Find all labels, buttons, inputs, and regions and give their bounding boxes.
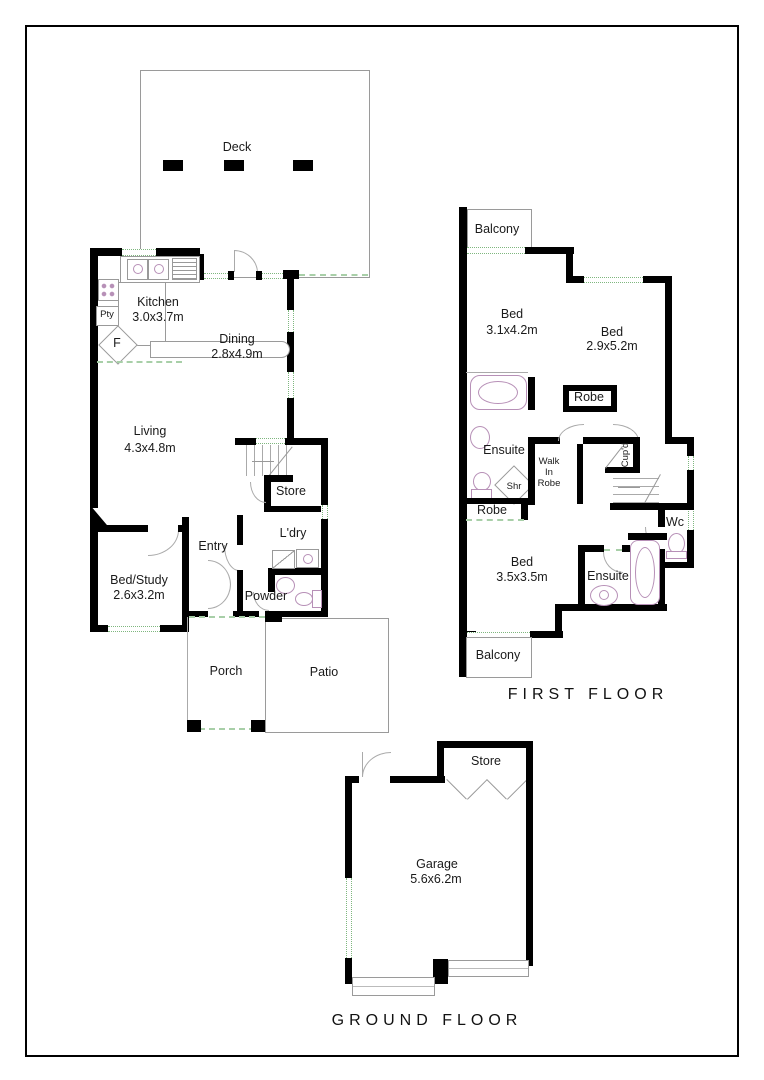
window [122,249,156,256]
opening-dash [189,616,265,618]
window [688,456,694,470]
laundry-tub-icon [272,550,295,569]
wir-label: In [545,468,553,478]
wall [321,445,328,505]
patio-label: Patio [310,666,339,680]
window [108,626,160,632]
window [346,878,352,958]
garage-dims: 5.6x6.2m [410,873,461,887]
wall [156,248,200,256]
window [584,277,643,283]
wall [265,611,282,622]
wall [528,437,560,444]
drainer-icon [172,258,197,280]
window [256,438,285,444]
wall [658,505,665,527]
wall [390,776,445,783]
door-leaf [362,752,363,776]
bed2-label: Bed [601,326,623,340]
wall [321,519,328,617]
wall [90,248,98,508]
wall [521,502,528,520]
pantry-label: Pty [100,310,114,320]
wall [583,437,605,444]
wall [90,525,148,532]
bed3-dims: 3.5x3.5m [496,571,547,585]
garage-door-panel [448,960,529,977]
porch-edge [187,617,188,730]
window [262,273,283,279]
wall [633,444,640,467]
wall-line [466,372,528,373]
wall [264,475,293,482]
balcony-top-label: Balcony [475,223,519,237]
wall [287,398,294,438]
wall [264,506,321,512]
wall [283,270,299,279]
toilet-icon [295,592,313,606]
dining-label: Dining [219,333,254,347]
wall [628,533,667,540]
wall [90,625,108,632]
deck-post [224,160,244,171]
window [688,508,694,530]
stairs-arrow [252,461,274,462]
toilet-icon [666,551,687,559]
window [322,505,328,519]
ensuite2-label: Ensuite [587,570,629,584]
bed-study-label: Bed/Study [110,574,168,588]
wall [665,562,694,568]
deck-label: Deck [223,141,251,155]
porch-post [187,720,201,732]
wall [459,207,467,677]
ensuite1-label: Ensuite [483,444,525,458]
porch-post [251,720,265,732]
wall [285,438,328,445]
fridge-label: F [113,337,121,351]
wall [665,283,672,437]
garage-door-panel [352,977,435,996]
wall [687,444,694,456]
opening-dash [97,361,182,363]
robe-strip-label: Robe [477,504,507,518]
wall [268,568,322,575]
entry-label: Entry [198,540,227,554]
window [288,310,294,332]
wall [182,517,189,632]
bed3-label: Bed [511,556,533,570]
wir-label: Robe [538,479,561,489]
store-label: Store [276,485,306,499]
toilet-icon [312,590,322,608]
wall [237,570,243,612]
basin-icon [590,585,618,606]
kitchen-label: Kitchen [137,296,179,310]
sink-icon [148,259,169,280]
wall [235,438,256,445]
wall [563,406,617,412]
ground-floor-title: GROUND FLOOR [332,1012,523,1030]
wall [90,248,122,256]
deck-post [293,160,313,171]
wall [437,741,533,748]
wall [526,778,533,966]
dining-dims: 2.8x4.9m [211,348,262,362]
wall [578,546,585,605]
living-label: Living [134,425,167,439]
wall [610,503,694,510]
bed1-label: Bed [501,308,523,322]
wall [665,437,694,444]
garage-label: Garage [416,858,458,872]
wall [433,959,448,984]
washer-icon [296,549,319,568]
robe-box-label: Robe [574,391,604,405]
stairs-arrow [618,487,640,488]
cupboard-label: Cup'd [621,443,631,468]
shower-label: Shr [507,482,522,492]
wall [643,276,672,283]
wall [345,776,352,878]
living-dims: 4.3x4.8m [124,442,175,456]
bath-icon [478,381,518,404]
sink-icon [127,259,148,280]
wc-label: Wc [666,516,684,530]
wall [530,631,563,638]
opening-dash [299,274,368,276]
window [467,247,525,254]
opening-dash [466,519,524,521]
bath-icon [635,547,655,598]
laundry-label: L'dry [280,527,307,541]
wall [526,741,533,779]
window [288,372,294,398]
wall [90,526,98,632]
wall [528,377,535,410]
floor-plan-page: Deck Kitchen 3.0x3.7m Pty F Dining 2.8x4… [0,0,764,1080]
first-floor-title: FIRST FLOOR [508,686,669,704]
deck-outline [140,70,370,278]
wall [237,515,243,545]
balcony-bottom-label: Balcony [476,649,520,663]
deck-post [163,160,183,171]
wall [525,247,574,254]
wir-label: Walk [539,457,560,467]
kitchen-dims: 3.0x3.7m [132,311,183,325]
bed-study-dims: 2.6x3.2m [113,589,164,603]
wall [160,625,189,632]
wall [622,545,630,552]
wall [345,958,352,984]
bed1-dims: 3.1x4.2m [486,324,537,338]
door-leaf [234,250,235,272]
opening-dash [604,549,622,551]
porch-label: Porch [210,665,243,679]
powder-label: Powder [245,590,287,604]
wall [566,276,584,283]
window [204,273,228,279]
wall [287,279,294,310]
wall [528,438,535,505]
wall [577,444,583,504]
garage-store-label: Store [471,755,501,769]
bed2-dims: 2.9x5.2m [586,340,637,354]
stove-icon [98,279,119,301]
wall [555,604,667,611]
